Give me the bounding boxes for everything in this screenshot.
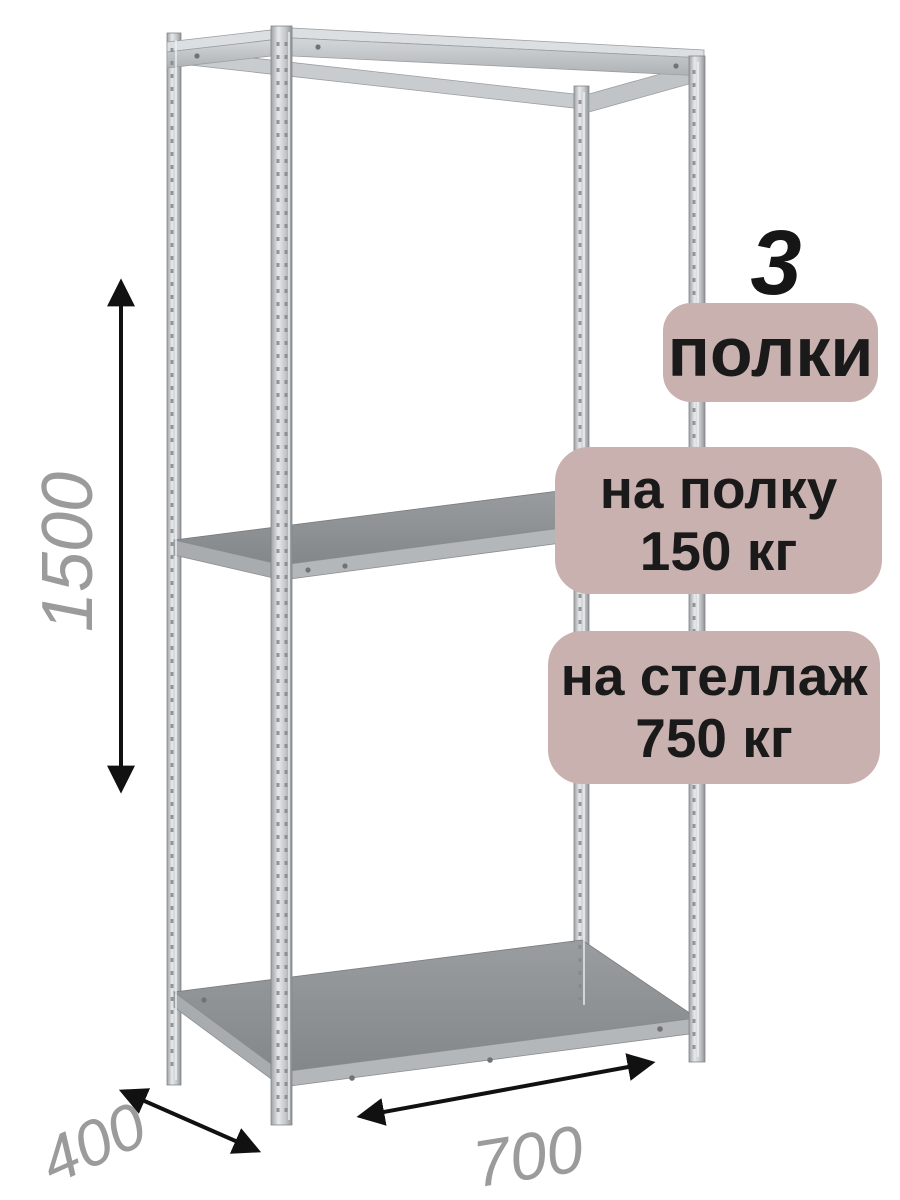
badge-shelves: полки xyxy=(663,303,878,402)
badge-per-rack-load: на стеллаж 750 кг xyxy=(548,631,880,784)
badge-per-shelf-line1: на полку xyxy=(600,459,838,521)
badge-shelves-label: полки xyxy=(668,313,874,391)
badge-per-shelf-load: на полку 150 кг xyxy=(555,447,882,594)
rack-illustration xyxy=(0,0,900,1200)
product-image: 1500 400 700 3 полки на полку 150 кг на … xyxy=(0,0,900,1200)
post-rear-left xyxy=(167,33,181,1085)
badge-per-shelf-line2: 150 кг xyxy=(640,521,797,583)
height-dimension-label: 1500 xyxy=(27,472,109,632)
shelf-count-number: 3 xyxy=(750,217,801,309)
badge-per-rack-line1: на стеллаж xyxy=(561,646,868,708)
width-dimension-label: 700 xyxy=(468,1110,589,1200)
badge-per-rack-line2: 750 кг xyxy=(635,708,792,770)
bottom-shelf xyxy=(174,940,697,1087)
